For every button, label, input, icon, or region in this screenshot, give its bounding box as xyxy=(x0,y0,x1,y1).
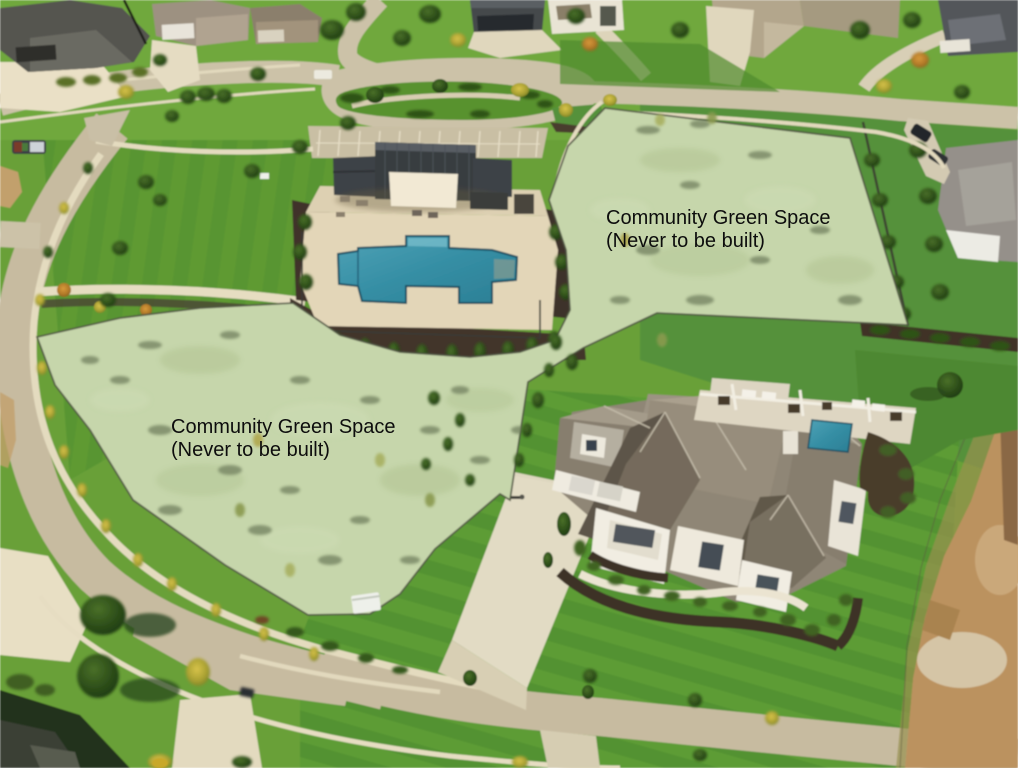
svg-text:(Never to be built): (Never to be built) xyxy=(606,230,765,252)
svg-text:Community Green Space: Community Green Space xyxy=(606,207,831,229)
svg-text:Community Green Space: Community Green Space xyxy=(171,416,396,438)
svg-text:(Never to be built): (Never to be built) xyxy=(171,439,330,461)
